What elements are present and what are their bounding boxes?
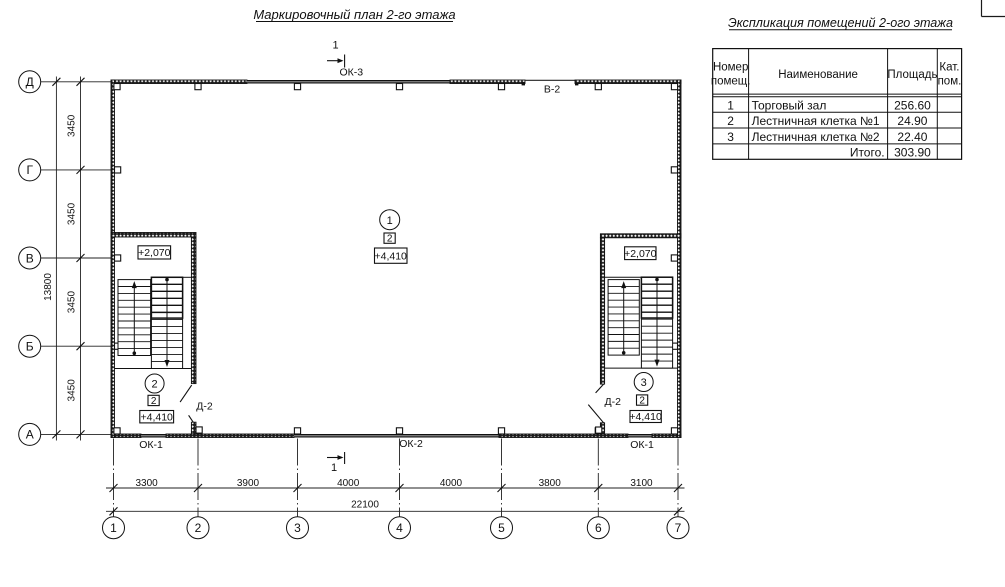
svg-text:3: 3 (727, 130, 734, 144)
svg-text:2: 2 (152, 379, 158, 391)
svg-text:1: 1 (331, 462, 337, 474)
svg-text:помещ.: помещ. (711, 76, 751, 88)
svg-text:24.90: 24.90 (897, 114, 927, 128)
svg-text:13800: 13800 (43, 273, 54, 301)
svg-text:Д: Д (26, 75, 34, 89)
svg-text:ОК-1: ОК-1 (630, 439, 654, 451)
svg-text:Площадь: Площадь (887, 69, 937, 81)
svg-text:5: 5 (498, 521, 505, 535)
svg-text:2: 2 (727, 114, 734, 128)
svg-text:3450: 3450 (67, 291, 78, 314)
svg-text:3900: 3900 (237, 478, 260, 489)
svg-text:7: 7 (675, 521, 682, 535)
svg-text:3800: 3800 (539, 478, 562, 489)
svg-text:2: 2 (639, 396, 645, 407)
svg-text:Торговый зал: Торговый зал (752, 98, 827, 112)
svg-text:4000: 4000 (337, 478, 360, 489)
svg-text:4000: 4000 (440, 478, 463, 489)
svg-text:+2,070: +2,070 (138, 247, 171, 259)
svg-text:Итого.: Итого. (850, 146, 885, 160)
svg-text:303.90: 303.90 (894, 146, 931, 160)
svg-text:Наименование: Наименование (778, 69, 858, 81)
svg-text:Лестничная клетка №1: Лестничная клетка №1 (752, 114, 880, 128)
svg-text:Экспликация помещений 2-ого эт: Экспликация помещений 2-ого этажа (728, 16, 953, 30)
svg-text:1: 1 (387, 215, 393, 227)
svg-text:22100: 22100 (351, 499, 379, 510)
svg-text:+4,410: +4,410 (374, 251, 407, 263)
svg-text:Г: Г (26, 163, 33, 177)
svg-text:ОК-2: ОК-2 (399, 438, 423, 450)
svg-text:3450: 3450 (67, 114, 78, 137)
svg-text:3100: 3100 (630, 478, 653, 489)
svg-text:22.40: 22.40 (897, 130, 927, 144)
svg-text:1: 1 (727, 98, 734, 112)
svg-text:+2,070: +2,070 (624, 248, 657, 260)
svg-text:+4,410: +4,410 (140, 411, 173, 423)
svg-text:3: 3 (641, 377, 647, 389)
svg-text:ОК-3: ОК-3 (339, 66, 363, 78)
svg-text:3450: 3450 (67, 379, 78, 402)
svg-text:Б: Б (26, 340, 34, 354)
svg-text:1: 1 (110, 521, 117, 535)
svg-text:2: 2 (387, 234, 393, 245)
svg-text:В-2: В-2 (544, 83, 561, 95)
svg-text:3450: 3450 (67, 202, 78, 225)
svg-text:А: А (26, 428, 34, 442)
svg-text:2: 2 (195, 521, 202, 535)
svg-text:3300: 3300 (135, 478, 158, 489)
svg-text:256.60: 256.60 (894, 98, 931, 112)
svg-text:6: 6 (595, 521, 602, 535)
svg-text:1: 1 (332, 40, 338, 52)
svg-text:Д-2: Д-2 (604, 396, 621, 408)
svg-text:Номер: Номер (713, 62, 748, 74)
svg-text:2: 2 (151, 396, 157, 407)
svg-text:Маркировочный план 2-го этажа: Маркировочный план 2-го этажа (253, 7, 455, 22)
svg-text:пом.: пом. (938, 76, 962, 88)
svg-text:3: 3 (294, 521, 301, 535)
svg-text:+4,410: +4,410 (629, 411, 662, 423)
svg-text:4: 4 (396, 521, 403, 535)
svg-text:Лестничная клетка №2: Лестничная клетка №2 (752, 130, 880, 144)
svg-text:Кат.: Кат. (939, 62, 959, 74)
svg-text:В: В (26, 251, 34, 265)
svg-text:ОК-1: ОК-1 (139, 439, 163, 451)
svg-text:Д-2: Д-2 (196, 401, 213, 413)
